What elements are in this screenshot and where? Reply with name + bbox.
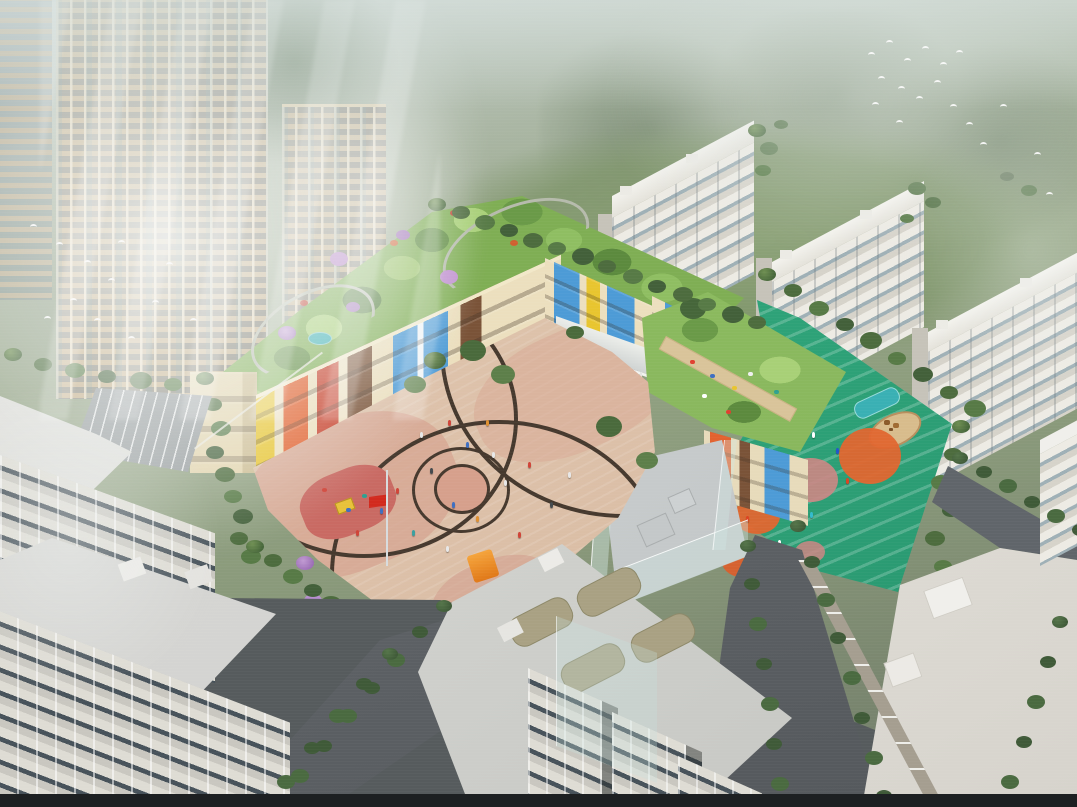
bottom-frame-bar xyxy=(0,794,1077,807)
bird xyxy=(950,104,957,110)
bird xyxy=(190,318,197,324)
bird xyxy=(922,46,929,52)
bird xyxy=(980,142,987,148)
bird xyxy=(84,260,91,266)
bird xyxy=(956,50,963,56)
bird xyxy=(108,278,115,284)
bird xyxy=(934,80,941,86)
bird xyxy=(872,102,879,108)
bird xyxy=(1046,192,1053,198)
bird xyxy=(886,40,893,46)
bird xyxy=(898,86,905,92)
bird xyxy=(966,122,973,128)
bird xyxy=(896,120,903,126)
bird xyxy=(94,318,101,324)
bird xyxy=(56,242,63,248)
bird xyxy=(1000,104,1007,110)
bird xyxy=(30,224,37,230)
bird-flocks xyxy=(0,0,1077,807)
bird xyxy=(1034,152,1041,158)
bird xyxy=(152,300,159,306)
bird xyxy=(166,262,173,268)
bird xyxy=(118,240,125,246)
bird xyxy=(868,52,875,58)
bird xyxy=(878,76,885,82)
architectural-rendering xyxy=(0,0,1077,807)
bird xyxy=(70,298,77,304)
bird xyxy=(904,58,911,64)
bird xyxy=(916,96,923,102)
bird xyxy=(940,62,947,68)
bird xyxy=(44,316,51,322)
bird xyxy=(128,336,135,342)
